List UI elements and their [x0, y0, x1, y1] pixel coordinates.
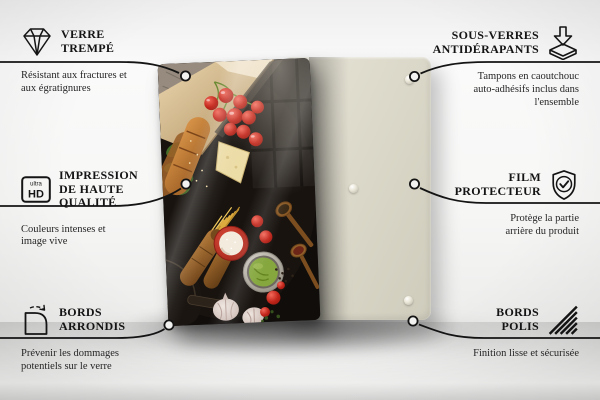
callout-description: Finition lisse et sécurisée: [447, 348, 579, 361]
ultra-hd-icon: ultra HD: [21, 176, 51, 203]
callout-title: SOUS-VERRES ANTIDÉRAPANTS: [431, 29, 539, 56]
callout-description: Résistant aux fractures et aux égratignu…: [21, 70, 133, 96]
callout-description: Prévenir les dommages potentiels sur le …: [21, 348, 133, 374]
callout-title: FILM PROTECTEUR: [443, 171, 541, 198]
callout-title: BORDS POLIS: [475, 306, 539, 333]
callout-description: Couleurs intenses et image vive: [21, 224, 113, 250]
callout-bords-polis: BORDS POLIS Finition lisse et sécurisée: [431, 304, 579, 361]
diamond-icon: [21, 26, 53, 58]
glass-panel: [158, 58, 321, 326]
callout-title: IMPRESSION DE HAUTE QUALITÉ: [59, 169, 155, 210]
rubber-pad: [405, 75, 414, 84]
food-photo: [158, 58, 321, 326]
callout-sous-verres: SOUS-VERRES ANTIDÉRAPANTS Tampons en cao…: [431, 26, 579, 109]
product-infographic: VERRE TREMPÉ Résistant aux fractures et …: [0, 0, 600, 400]
ultra-label: ultra: [30, 181, 42, 187]
arrow-down-pad-icon: [547, 26, 579, 60]
callout-impression-hd: ultra HD IMPRESSION DE HAUTE QUALITÉ Cou…: [21, 169, 155, 249]
shield-check-icon: [549, 169, 579, 201]
callout-title: VERRE TREMPÉ: [61, 28, 137, 55]
callout-bords-arrondis: BORDS ARRONDIS Prévenir les dommages pot…: [21, 304, 155, 374]
polished-edge-icon: [547, 304, 579, 336]
callout-description: Protège la partie arrière du produit: [487, 213, 579, 239]
rubber-pad: [349, 184, 358, 193]
callout-film-protecteur: FILM PROTECTEUR Protège la partie arrièr…: [437, 169, 579, 239]
callout-verre-trempe: VERRE TREMPÉ Résistant aux fractures et …: [21, 26, 153, 96]
rubber-pad: [404, 296, 413, 305]
rounded-corner-icon: [21, 304, 51, 336]
callout-title: BORDS ARRONDIS: [59, 306, 143, 333]
callout-description: Tampons en caoutchouc auto-adhésifs incl…: [473, 71, 579, 109]
hd-label: HD: [28, 188, 44, 200]
